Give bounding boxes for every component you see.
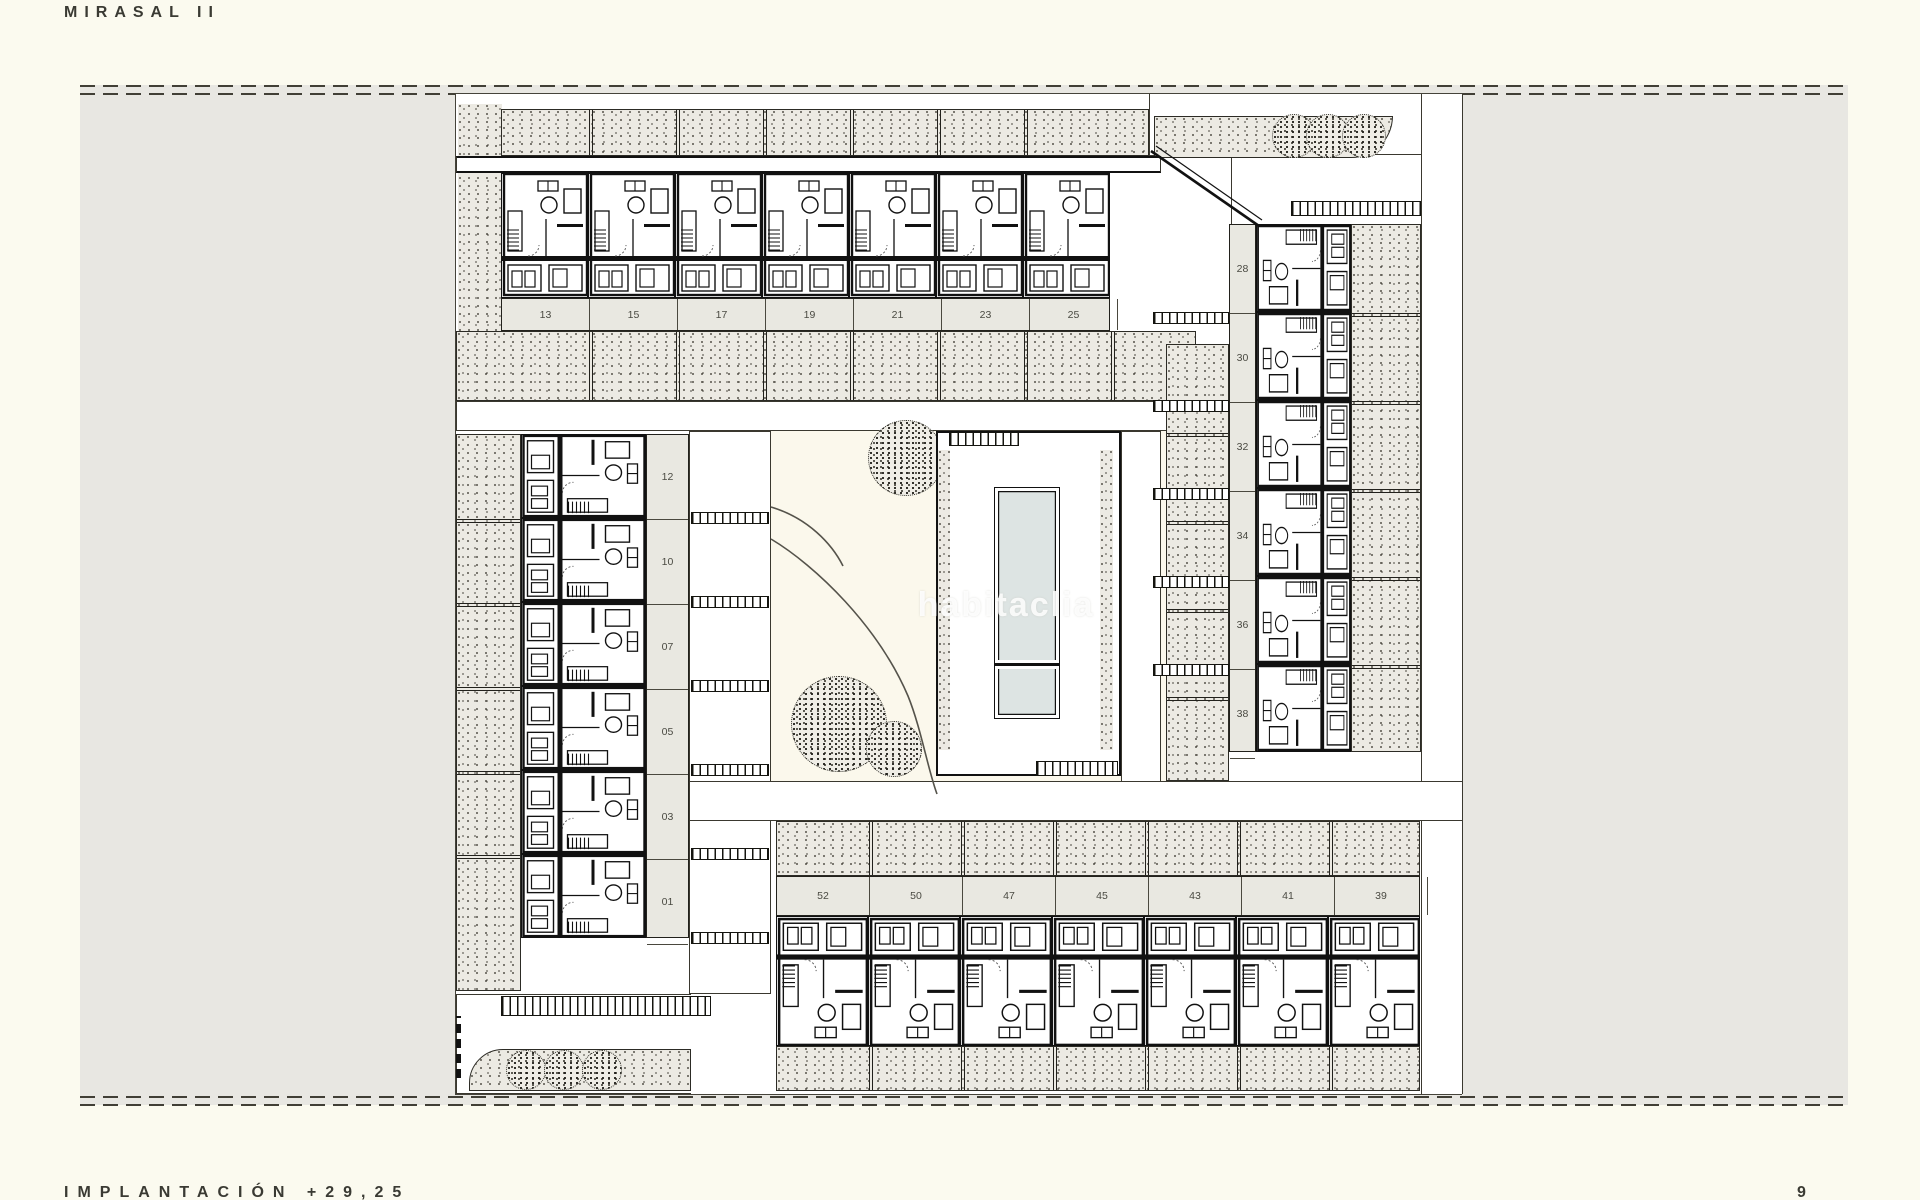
unit-floorplan bbox=[521, 686, 646, 770]
unit-floorplan bbox=[675, 173, 762, 298]
plot-divider bbox=[457, 690, 520, 691]
garden-strip-bottom bbox=[776, 821, 1420, 876]
plot-divider bbox=[1332, 1047, 1333, 1090]
tree-icon bbox=[506, 1050, 546, 1090]
street-right bbox=[1421, 94, 1463, 1094]
plot-divider bbox=[1352, 404, 1420, 405]
unit-floorplan bbox=[1256, 312, 1351, 400]
unit-number: 13 bbox=[502, 299, 590, 330]
unit-floorplan bbox=[1328, 916, 1420, 1046]
unit-block-right bbox=[1256, 224, 1351, 752]
plot-divider bbox=[937, 332, 938, 400]
plot-divider bbox=[1056, 822, 1057, 875]
plot-divider bbox=[457, 687, 520, 688]
plot-divider bbox=[853, 110, 854, 155]
unit-number: 25 bbox=[1030, 299, 1118, 330]
driveway-hatch bbox=[691, 680, 769, 692]
driveway-hatch bbox=[1153, 576, 1229, 588]
driveway-hatch bbox=[1153, 312, 1229, 324]
plot-divider bbox=[1329, 822, 1330, 875]
unit-number: 23 bbox=[942, 299, 1030, 330]
unit-block-bottom bbox=[776, 916, 1420, 1046]
plot-divider bbox=[940, 332, 941, 400]
unit-floorplan bbox=[1256, 224, 1351, 312]
tree-icon bbox=[866, 721, 922, 777]
plot-divider bbox=[766, 332, 767, 400]
plot-divider bbox=[1329, 1047, 1330, 1090]
unit-floorplan bbox=[521, 602, 646, 686]
unit-floorplan bbox=[521, 518, 646, 602]
plot-divider bbox=[872, 822, 873, 875]
plot-divider bbox=[937, 110, 938, 155]
deck-hatch bbox=[1036, 761, 1118, 776]
tree-icon bbox=[582, 1050, 622, 1090]
boundary-line-bottom bbox=[80, 1104, 1848, 1106]
driveway-hatch bbox=[691, 512, 769, 524]
plot-divider bbox=[869, 1047, 870, 1090]
unit-number: 39 bbox=[1335, 877, 1428, 915]
garden-strip-right bbox=[1351, 224, 1421, 752]
plot-divider bbox=[964, 1047, 965, 1090]
plot-divider bbox=[1167, 612, 1228, 613]
plot-divider bbox=[961, 1047, 962, 1090]
plot-divider bbox=[850, 332, 851, 400]
unit-number: 28 bbox=[1230, 225, 1255, 314]
plot-divider bbox=[1352, 313, 1420, 314]
unit-number-band-left: 121007050301 bbox=[646, 434, 689, 938]
parking-hatch bbox=[1291, 201, 1429, 216]
plot-divider bbox=[1167, 433, 1228, 434]
street-mid-top bbox=[456, 401, 1231, 431]
unit-floorplan bbox=[1256, 576, 1351, 664]
unit-floorplan bbox=[762, 173, 849, 298]
tree-icon bbox=[1342, 114, 1386, 158]
plot-divider bbox=[1111, 332, 1112, 400]
plot-divider bbox=[1167, 436, 1228, 437]
plot-divider bbox=[1024, 332, 1025, 400]
garden-strip-top bbox=[501, 109, 1149, 156]
unit-number: 43 bbox=[1149, 877, 1242, 915]
unit-number: 47 bbox=[963, 877, 1056, 915]
plot-divider bbox=[1352, 492, 1420, 493]
plot-divider bbox=[1352, 316, 1420, 317]
unit-number: 38 bbox=[1230, 670, 1255, 759]
unit-floorplan bbox=[1236, 916, 1328, 1046]
plot-divider bbox=[1056, 1047, 1057, 1090]
sheet-title: MIRASAL II bbox=[64, 4, 220, 22]
plot-divider bbox=[763, 332, 764, 400]
parking-hatch bbox=[501, 996, 711, 1016]
page-number: 9 bbox=[1797, 1184, 1806, 1200]
plot-divider bbox=[850, 110, 851, 155]
unit-floorplan bbox=[776, 916, 868, 1046]
plot-divider bbox=[589, 332, 590, 400]
unit-floorplan bbox=[849, 173, 936, 298]
unit-number: 52 bbox=[777, 877, 870, 915]
tree-icon bbox=[544, 1050, 584, 1090]
unit-floorplan bbox=[1256, 488, 1351, 576]
driveway-hatch bbox=[691, 596, 769, 608]
plot-divider bbox=[1167, 524, 1228, 525]
plot-divider bbox=[676, 332, 677, 400]
site-plan: 13151719212325 bbox=[455, 93, 1462, 1095]
plot-divider bbox=[679, 110, 680, 155]
plot-divider bbox=[869, 822, 870, 875]
plot-divider bbox=[766, 110, 767, 155]
unit-number: 10 bbox=[647, 520, 688, 605]
unit-number: 07 bbox=[647, 605, 688, 690]
unit-number-band-top: 13151719212325 bbox=[501, 298, 1110, 331]
plot-divider bbox=[1167, 697, 1228, 698]
unit-number: 17 bbox=[678, 299, 766, 330]
plot-divider bbox=[853, 332, 854, 400]
unit-floorplan bbox=[588, 173, 675, 298]
patio-strip-left bbox=[456, 434, 521, 991]
plot-divider bbox=[1352, 577, 1420, 578]
plot-divider bbox=[763, 110, 764, 155]
driveway-hatch bbox=[1153, 400, 1229, 412]
unit-block-top bbox=[501, 173, 1110, 298]
plot-divider bbox=[589, 110, 590, 155]
unit-number: 15 bbox=[590, 299, 678, 330]
pool-divider bbox=[995, 663, 1059, 666]
plot-divider bbox=[1053, 1047, 1054, 1090]
deck-hatch bbox=[949, 432, 1019, 446]
drawing-sheet: MIRASAL II bbox=[0, 0, 1920, 1200]
plot-divider bbox=[1114, 332, 1115, 400]
unit-floorplan bbox=[868, 916, 960, 1046]
unit-number: 50 bbox=[870, 877, 963, 915]
plot-divider bbox=[1352, 580, 1420, 581]
plot-divider bbox=[1148, 822, 1149, 875]
unit-number: 36 bbox=[1230, 581, 1255, 670]
unit-floorplan bbox=[521, 770, 646, 854]
patio-strip-bottom bbox=[776, 1046, 1420, 1091]
unit-number: 30 bbox=[1230, 314, 1255, 403]
plot-divider bbox=[1145, 822, 1146, 875]
plot-divider bbox=[1027, 110, 1028, 155]
driveway-hatch bbox=[691, 848, 769, 860]
patio-strip-top bbox=[456, 331, 1196, 401]
plot-divider bbox=[457, 519, 520, 520]
plot-divider bbox=[1027, 332, 1028, 400]
plot-divider bbox=[872, 1047, 873, 1090]
curb-marks bbox=[456, 1016, 461, 1078]
street-bottom bbox=[689, 781, 1463, 821]
plot-divider bbox=[457, 855, 520, 856]
unit-number: 03 bbox=[647, 775, 688, 860]
driveway-hatch bbox=[691, 764, 769, 776]
driveway-hatch bbox=[691, 932, 769, 944]
unit-floorplan bbox=[960, 916, 1052, 1046]
unit-number: 34 bbox=[1230, 492, 1255, 581]
unit-block-left bbox=[521, 434, 646, 938]
unit-number: 41 bbox=[1242, 877, 1335, 915]
swimming-pool bbox=[994, 487, 1060, 719]
unit-number: 12 bbox=[647, 435, 688, 520]
plot-divider bbox=[1352, 665, 1420, 666]
plot-divider bbox=[676, 110, 677, 155]
plot-divider bbox=[964, 822, 965, 875]
plot-divider bbox=[1148, 1047, 1149, 1090]
unit-floorplan bbox=[1256, 664, 1351, 752]
boundary-line-bottom-inner bbox=[80, 1096, 1848, 1098]
plot-divider bbox=[940, 110, 941, 155]
unit-floorplan bbox=[1144, 916, 1236, 1046]
unit-number: 19 bbox=[766, 299, 854, 330]
plot-divider bbox=[1352, 489, 1420, 490]
unit-floorplan bbox=[936, 173, 1023, 298]
unit-floorplan bbox=[521, 434, 646, 518]
deck-planter bbox=[938, 450, 950, 750]
plot-divider bbox=[592, 110, 593, 155]
unit-number: 01 bbox=[647, 860, 688, 945]
plot-divider bbox=[1237, 1047, 1238, 1090]
plot-divider bbox=[1240, 1047, 1241, 1090]
plot-divider bbox=[1352, 401, 1420, 402]
unit-floorplan bbox=[1052, 916, 1144, 1046]
plot-divider bbox=[679, 332, 680, 400]
tree-icon bbox=[868, 420, 944, 496]
boundary-line-top bbox=[80, 85, 1848, 87]
plot-divider bbox=[1167, 609, 1228, 610]
plot-divider bbox=[961, 822, 962, 875]
plot-divider bbox=[457, 774, 520, 775]
unit-number: 05 bbox=[647, 690, 688, 775]
unit-number-band-bottom: 52504745434139 bbox=[776, 876, 1420, 916]
driveway-hatch bbox=[1153, 488, 1229, 500]
plot-divider bbox=[1024, 110, 1025, 155]
plot-divider bbox=[1145, 1047, 1146, 1090]
plot-divider bbox=[457, 771, 520, 772]
unit-number: 32 bbox=[1230, 403, 1255, 492]
plot-divider bbox=[1332, 822, 1333, 875]
plot-divider bbox=[457, 606, 520, 607]
unit-number: 45 bbox=[1056, 877, 1149, 915]
plot-divider bbox=[592, 332, 593, 400]
plot-divider bbox=[457, 858, 520, 859]
driveway-hatch bbox=[1153, 664, 1229, 676]
unit-floorplan bbox=[1256, 400, 1351, 488]
plot-divider bbox=[1167, 521, 1228, 522]
plot-divider bbox=[1352, 668, 1420, 669]
unit-number-band-right: 283032343638 bbox=[1229, 224, 1256, 752]
plot-divider bbox=[1167, 700, 1228, 701]
unit-number: 21 bbox=[854, 299, 942, 330]
unit-floorplan bbox=[521, 854, 646, 938]
unit-floorplan bbox=[501, 173, 588, 298]
plot-divider bbox=[1240, 822, 1241, 875]
plot-divider bbox=[1237, 822, 1238, 875]
street-top bbox=[456, 156, 1161, 173]
plot-divider bbox=[457, 603, 520, 604]
sheet-caption: IMPLANTACIÓN +29,25 bbox=[64, 1184, 410, 1200]
plot-divider bbox=[457, 522, 520, 523]
deck-planter bbox=[1100, 450, 1113, 750]
plot-divider bbox=[1053, 822, 1054, 875]
unit-floorplan bbox=[1023, 173, 1110, 298]
